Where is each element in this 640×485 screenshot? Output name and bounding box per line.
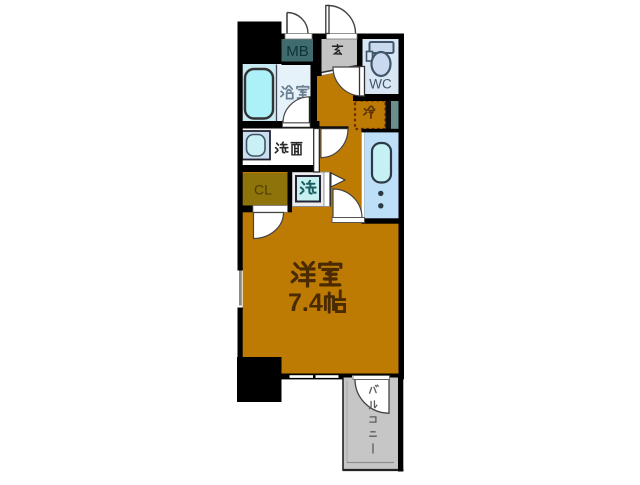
svg-text:CL: CL bbox=[254, 182, 272, 198]
svg-text:WC: WC bbox=[369, 77, 392, 92]
svg-text:7.4: 7.4 bbox=[288, 289, 323, 317]
svg-text:MB: MB bbox=[286, 43, 309, 60]
